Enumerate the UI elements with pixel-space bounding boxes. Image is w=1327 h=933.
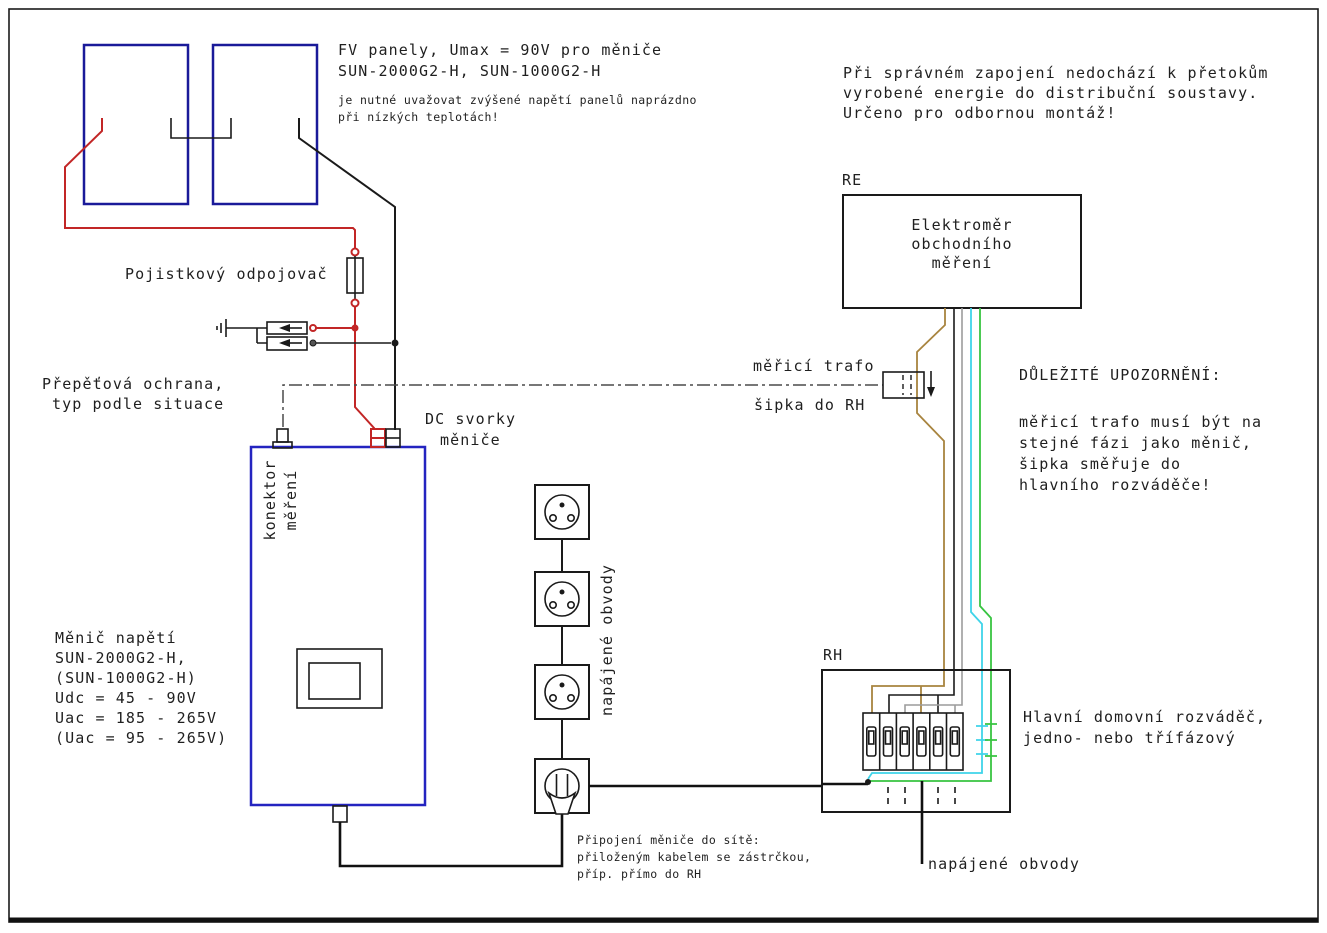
socket-4-with-plug — [535, 759, 589, 814]
ac-cable-wire — [340, 814, 562, 866]
dc-plus-wire-lower — [355, 307, 374, 430]
socket-3 — [535, 665, 589, 719]
wire-l1-brown — [872, 308, 945, 713]
pv-title-line1: FV panely, Umax = 90V pro měniče — [338, 40, 662, 60]
fuse-disconnector-label: Pojistkový odpojovač — [125, 264, 328, 284]
socket-2 — [535, 572, 589, 626]
inverter-spec-line6: (Uac = 95 - 265V) — [55, 728, 227, 748]
important-line3: šipka směřuje do — [1019, 454, 1262, 475]
dc-plus-junction-dot — [352, 325, 359, 332]
wiring-diagram: FV panely, Umax = 90V pro měniče SUN-200… — [0, 0, 1327, 933]
spd-label-line2: typ podle situace — [52, 394, 224, 414]
inverter-spec-line5: Uac = 185 - 265V — [55, 708, 227, 728]
dc-terminal-plus — [371, 429, 385, 447]
ground-icon — [217, 319, 226, 337]
spd-ground-wire — [226, 328, 267, 343]
meter-to-rh-wires — [872, 308, 991, 722]
dc-terminals-label-line1: DC svorky — [425, 409, 516, 429]
meter-label-line2: obchodního — [843, 235, 1081, 254]
pv-note-line2: při nízkých teplotách! — [338, 109, 499, 126]
socket-1 — [535, 485, 589, 539]
neutral-bus-bar — [976, 722, 988, 766]
rh-tag: RH — [823, 645, 843, 665]
meter-box-label: Elektroměr obchodního měření — [843, 216, 1081, 273]
neutral-rail — [868, 766, 982, 779]
measurement-connector-label: konektor měření — [260, 459, 302, 540]
rh-desc-line2: jedno- nebo třífázový — [1023, 728, 1236, 748]
inverter-spec-line4: Udc = 45 - 90V — [55, 688, 227, 708]
meter-label-line1: Elektroměr — [843, 216, 1081, 235]
ct-direction-arrow-icon — [927, 371, 935, 397]
meter-label-line3: měření — [843, 254, 1081, 273]
inverter-spec-block: Měnič napětí SUN-2000G2-H, (SUN-1000G2-H… — [55, 628, 227, 748]
rh-junction-dot — [865, 779, 871, 785]
grid-warning-line1: Při správném zapojení nedochází k přetok… — [843, 63, 1269, 83]
connector-label-line1: konektor — [260, 459, 281, 540]
important-line2: stejné fázi jako měnič, — [1019, 433, 1262, 454]
pv-panel-array — [84, 45, 317, 204]
inverter-spec-line1: Měnič napětí — [55, 628, 227, 648]
grid-warning-note: Při správném zapojení nedochází k přetok… — [843, 63, 1269, 123]
meter-tag: RE — [842, 170, 862, 190]
connector-label-line2: měření — [281, 459, 302, 540]
pv-panel-1 — [84, 45, 188, 204]
pv-note-line1: je nutné uvažovat zvýšené napětí panelů … — [338, 92, 697, 109]
important-line1: měřicí trafo musí být na — [1019, 412, 1262, 433]
ac-output-connector — [333, 806, 347, 822]
inverter-spec-line3: (SUN-1000G2-H) — [55, 668, 227, 688]
dc-minus-junction-dot — [392, 340, 399, 347]
pv-panel-2 — [213, 45, 317, 204]
inverter-spec-line2: SUN-2000G2-H, — [55, 648, 227, 668]
plug-note-line3: příp. přímo do RH — [577, 866, 702, 883]
spd-arrow-icons — [279, 324, 302, 347]
plug-body-icon — [549, 793, 575, 814]
rh-desc-line1: Hlavní domovní rozváděč, — [1023, 707, 1266, 727]
fuse-terminal-bottom — [352, 300, 359, 307]
surge-protection-device — [217, 319, 391, 350]
powered-circuits-vertical-label: napájené obvody — [597, 564, 617, 716]
pe-bus-bar — [985, 720, 997, 768]
spd-terminal-black — [310, 340, 316, 346]
ct-label-line2: šipka do RH — [754, 395, 865, 415]
pv-series-link-wire — [171, 118, 231, 138]
fuse-terminal-top — [352, 249, 359, 256]
breaker-row — [863, 713, 963, 770]
socket-column — [535, 485, 822, 814]
measurement-connector — [273, 429, 292, 448]
spd-terminal-red — [310, 325, 316, 331]
dc-terminals-label-line2: měniče — [440, 430, 501, 450]
ct-label-line1: měřicí trafo — [753, 356, 875, 376]
spd-label-line1: Přepěťová ochrana, — [42, 374, 224, 394]
important-warning-body: měřicí trafo musí být na stejné fázi jak… — [1019, 412, 1262, 496]
dc-terminal-minus — [386, 429, 400, 447]
plug-note-line2: přiloženým kabelem se zástrčkou, — [577, 849, 811, 866]
powered-circuits-bottom-label: napájené obvody — [928, 854, 1080, 874]
current-transformer — [883, 371, 935, 398]
pv-title-line2: SUN-2000G2-H, SUN-1000G2-H — [338, 61, 601, 81]
plug-note-line1: Připojení měniče do sítě: — [577, 832, 760, 849]
grid-warning-line2: vyrobené energie do distribuční soustavy… — [843, 83, 1269, 103]
important-line4: hlavního rozváděče! — [1019, 475, 1262, 496]
important-warning-title: DŮLEŽITÉ UPOZORNĚNÍ: — [1019, 365, 1222, 385]
grid-warning-line3: Určeno pro odbornou montáž! — [843, 103, 1269, 123]
